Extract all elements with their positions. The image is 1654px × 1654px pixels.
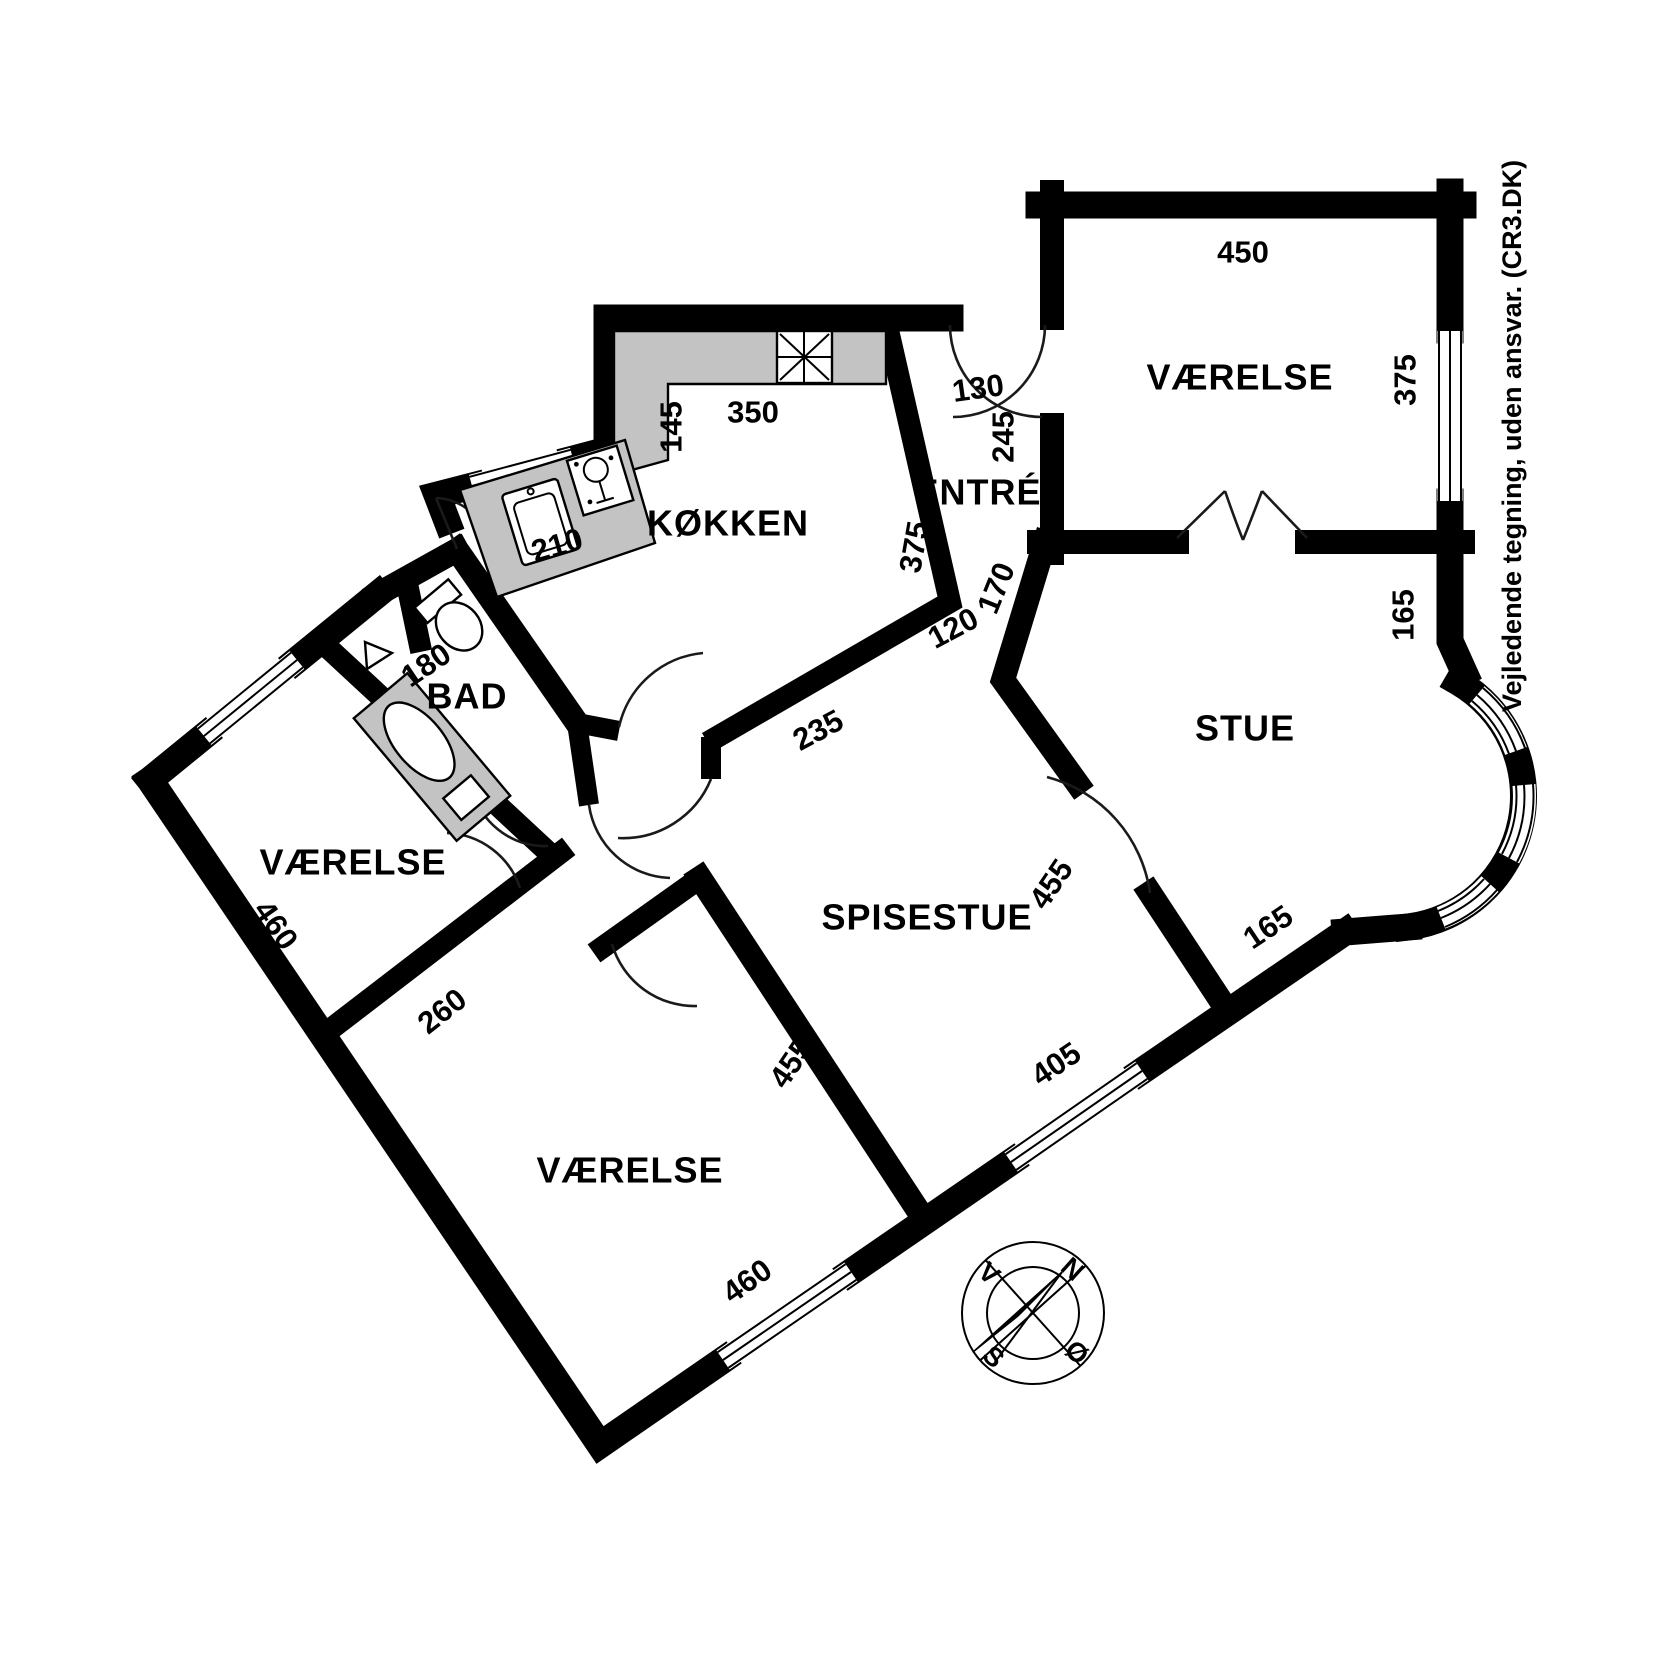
room-label-bad: BAD	[427, 676, 508, 717]
room-label-koekken: KØKKEN	[647, 503, 809, 544]
dimension-label: 165	[1386, 589, 1421, 641]
dimension-label: 260	[411, 981, 473, 1040]
dimension-label: 405	[1025, 1035, 1087, 1093]
shower-icon	[365, 642, 392, 669]
compass-point-V: V	[972, 1256, 1005, 1290]
room-label-stue: STUE	[1195, 708, 1295, 749]
dimension-label: 375	[1388, 354, 1423, 406]
hall-door-arc	[589, 805, 670, 878]
dimension-label: 245	[986, 411, 1021, 463]
dimension-label: 235	[787, 702, 849, 757]
room-label-vaerelse-ne: VÆRELSE	[1146, 357, 1333, 398]
window-dining	[1006, 1063, 1148, 1170]
compass-rose: NØSV	[962, 1242, 1104, 1384]
dimension-label: 145	[654, 401, 689, 453]
hall-dining-door-arc	[618, 779, 711, 838]
disclaimer-text: Vejledende tegning, uden ansvar. (CR3.DK…	[1497, 160, 1528, 712]
room-label-entre: ENTRÉ	[914, 472, 1041, 513]
room-label-vaerelse-w: VÆRELSE	[259, 842, 446, 883]
double-door	[1177, 491, 1307, 540]
dimension-label: 460	[716, 1252, 778, 1310]
fixtures	[354, 331, 886, 841]
window-west-bedroom	[198, 653, 303, 744]
floorplan-canvas: NØSV VÆRELSESTUEENTRÉKØKKENBADVÆRELSESPI…	[0, 0, 1654, 1654]
stove-icon	[777, 331, 832, 383]
dimension-label: 165	[1237, 898, 1299, 956]
dimension-label: 350	[727, 395, 779, 430]
floorplan-page: NØSV VÆRELSESTUEENTRÉKØKKENBADVÆRELSESPI…	[0, 0, 1654, 1654]
dimension-label: 450	[1217, 235, 1269, 270]
interior-wall	[378, 192, 1463, 1221]
south-bedroom-door-arc	[612, 944, 697, 1006]
compass-point-N: N	[1055, 1251, 1090, 1286]
room-label-spisestue: SPISESTUE	[821, 897, 1032, 938]
dimension-label: 375	[892, 518, 935, 575]
interior-wall-stub	[577, 723, 711, 805]
room-label-vaerelse-s: VÆRELSE	[536, 1150, 723, 1191]
hall-kitchen-door-arc	[619, 653, 703, 727]
window-east	[1438, 330, 1463, 502]
compass-point-Ø: Ø	[1059, 1334, 1095, 1370]
dimension-label: 130	[950, 367, 1006, 409]
